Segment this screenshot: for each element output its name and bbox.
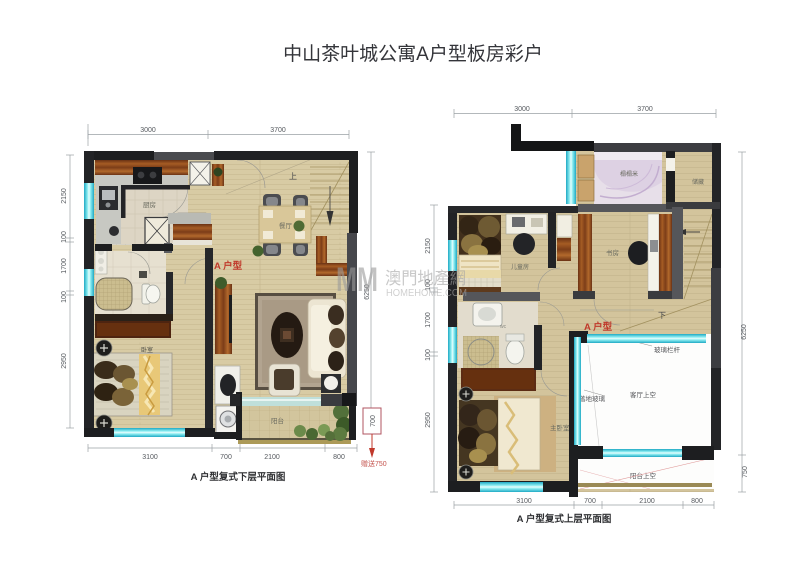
svg-text:2950: 2950: [425, 412, 432, 428]
svg-text:阳台: 阳台: [271, 416, 284, 425]
svg-text:上: 上: [289, 172, 297, 181]
svg-text:A 户型: A 户型: [584, 321, 613, 333]
svg-text:2150: 2150: [425, 238, 432, 254]
svg-text:3700: 3700: [270, 127, 286, 134]
svg-text:A 户型复式下层平面图: A 户型复式下层平面图: [191, 471, 286, 483]
svg-text:MM: MM: [336, 261, 378, 299]
svg-text:A 户型复式上层平面图: A 户型复式上层平面图: [517, 513, 612, 525]
svg-text:餐厅: 餐厅: [279, 221, 293, 230]
svg-text:中山茶叶城公寓A户型板房彩户: 中山茶叶城公寓A户型板房彩户: [283, 43, 543, 65]
svg-text:赠送750: 赠送750: [361, 459, 387, 468]
svg-text:1700: 1700: [425, 312, 432, 328]
svg-text:3000: 3000: [514, 106, 530, 113]
svg-text:2100: 2100: [639, 498, 655, 505]
svg-text:A 户型: A 户型: [214, 260, 243, 272]
svg-text:客厅上空: 客厅上空: [630, 390, 657, 399]
svg-text:3100: 3100: [142, 454, 158, 461]
svg-text:榻榻米: 榻榻米: [620, 170, 638, 178]
svg-text:100: 100: [61, 231, 68, 243]
svg-text:阳台上空: 阳台上空: [630, 471, 657, 480]
svg-text:700: 700: [370, 415, 377, 427]
svg-text:储藏: 储藏: [692, 178, 704, 186]
svg-text:厨房: 厨房: [143, 200, 156, 209]
svg-text:2950: 2950: [61, 353, 68, 369]
svg-text:2150: 2150: [61, 188, 68, 204]
svg-text:玻璃栏杆: 玻璃栏杆: [654, 345, 681, 354]
svg-text:6250: 6250: [741, 324, 748, 340]
svg-text:主卧室: 主卧室: [550, 423, 570, 432]
svg-text:wc: wc: [500, 324, 507, 330]
svg-text:3100: 3100: [516, 498, 532, 505]
svg-text:100: 100: [425, 349, 432, 361]
svg-text:100: 100: [61, 291, 68, 303]
svg-text:下: 下: [658, 311, 666, 320]
svg-text:儿童房: 儿童房: [511, 263, 529, 271]
svg-text:700: 700: [220, 454, 232, 461]
svg-text:800: 800: [691, 498, 703, 505]
svg-text:3700: 3700: [637, 106, 653, 113]
svg-text:书房: 书房: [606, 248, 619, 257]
svg-text:落地玻璃: 落地玻璃: [579, 394, 606, 403]
svg-text:1700: 1700: [61, 258, 68, 274]
svg-text:3000: 3000: [140, 127, 156, 134]
svg-text:800: 800: [333, 454, 345, 461]
svg-text:澳門地產網: 澳門地產網: [385, 269, 466, 288]
svg-text:700: 700: [584, 498, 596, 505]
svg-text:HOMEHOME.COM: HOMEHOME.COM: [386, 287, 467, 299]
svg-text:750: 750: [742, 466, 749, 478]
svg-text:2100: 2100: [264, 454, 280, 461]
